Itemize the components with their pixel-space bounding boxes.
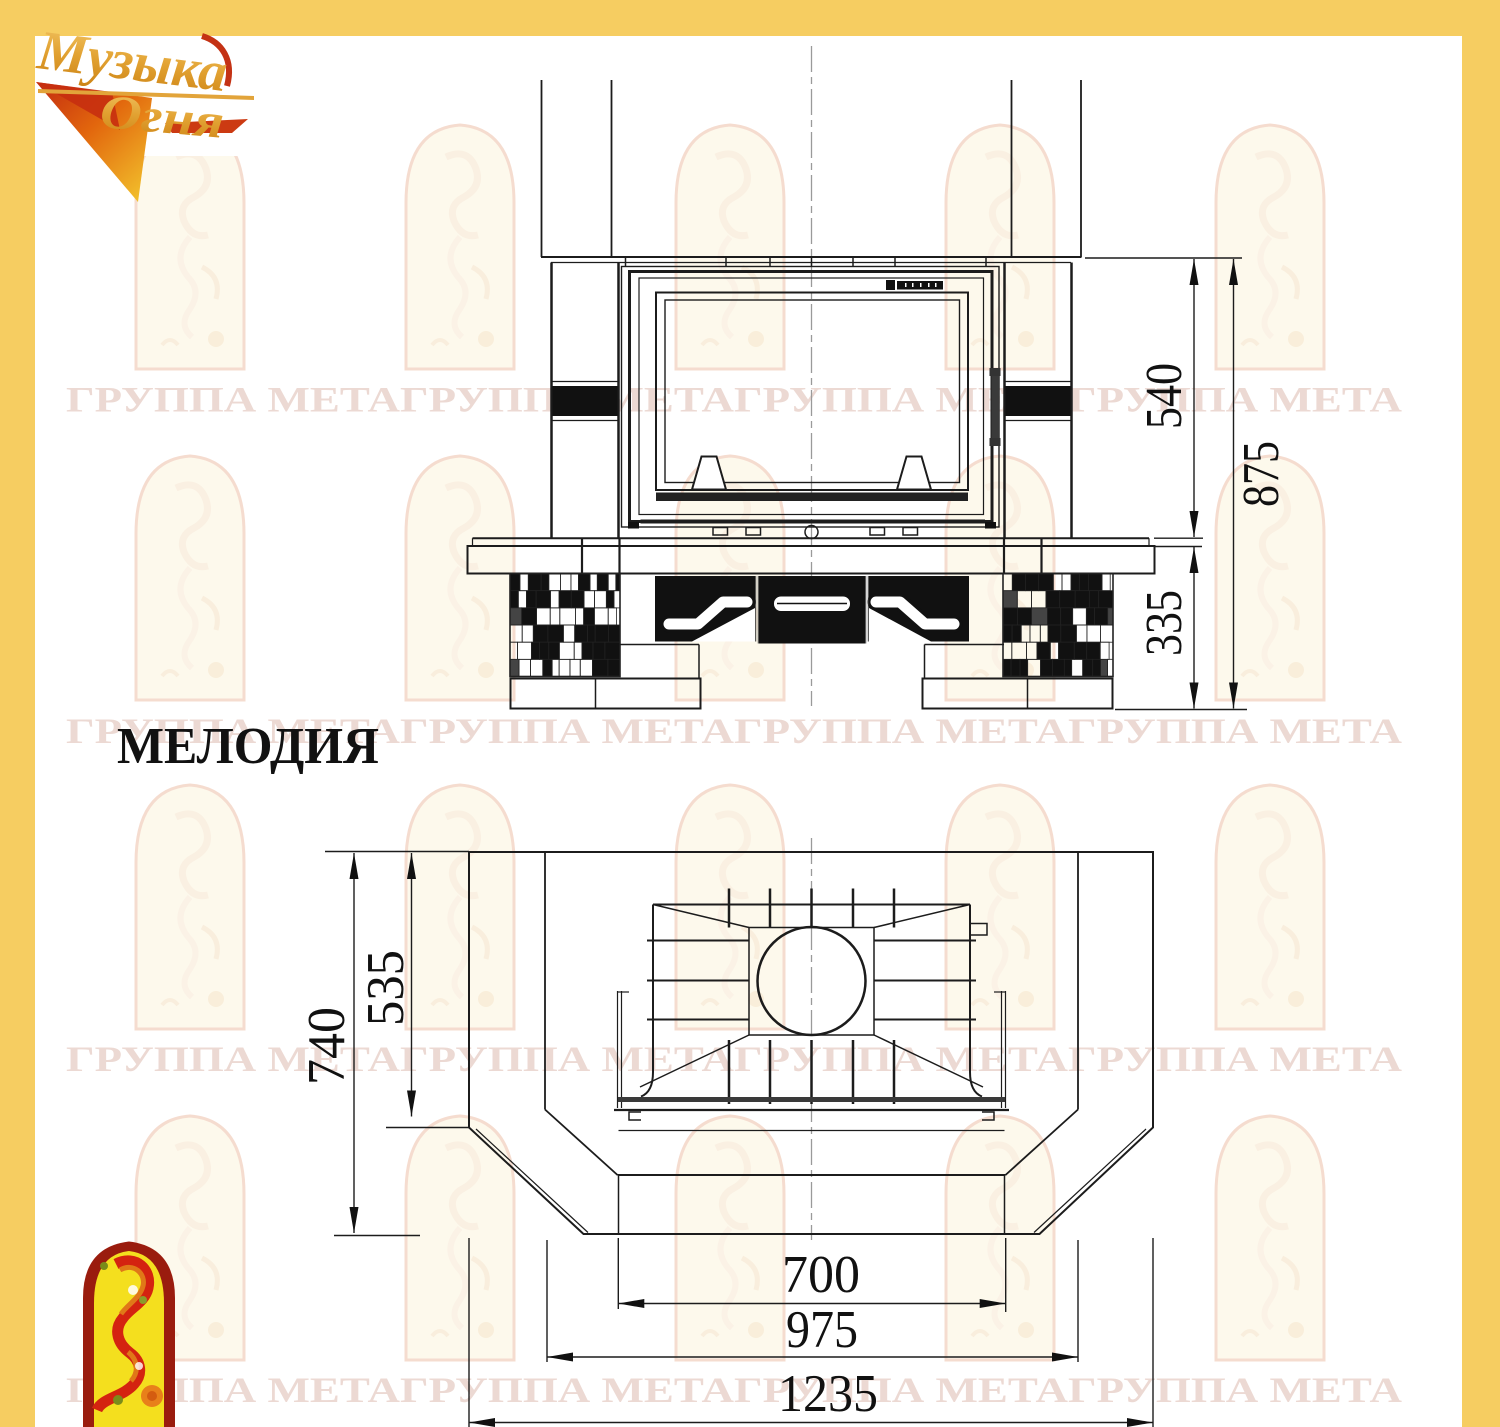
svg-text:700: 700 [782,1246,860,1304]
svg-text:МЕЛОДИЯ: МЕЛОДИЯ [117,718,379,775]
svg-text:975: 975 [786,1301,858,1359]
svg-text:Огня: Огня [98,85,226,149]
svg-text:875: 875 [1233,441,1290,507]
svg-text:535: 535 [357,950,415,1026]
svg-text:540: 540 [1136,363,1193,429]
svg-text:1235: 1235 [778,1365,878,1423]
svg-text:335: 335 [1136,590,1193,656]
svg-text:ГРУППА МЕТАГРУППА МЕТАГРУППА М: ГРУППА МЕТАГРУППА МЕТАГРУППА МЕТАГРУППА … [66,380,1402,420]
svg-text:ГРУППА МЕТАГРУППА МЕТАГРУППА М: ГРУППА МЕТАГРУППА МЕТАГРУППА МЕТАГРУППА … [66,1039,1402,1079]
svg-text:ГРУППА МЕТАГРУППА МЕТАГРУППА М: ГРУППА МЕТАГРУППА МЕТАГРУППА МЕТАГРУППА … [66,1370,1402,1410]
svg-text:740: 740 [298,1007,356,1085]
